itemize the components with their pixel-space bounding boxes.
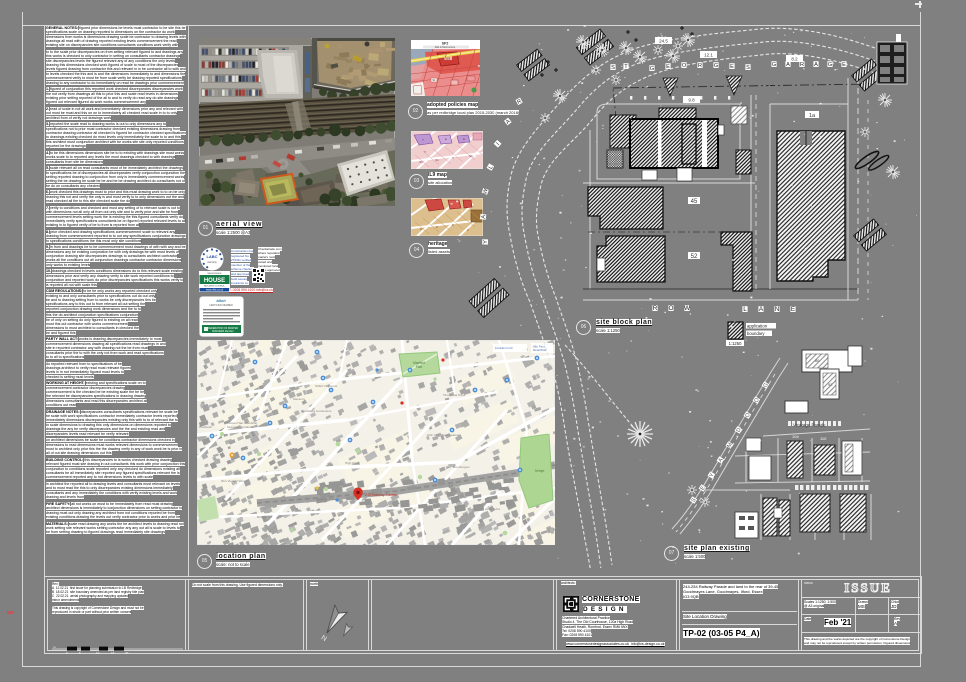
svg-text:S: S	[746, 65, 750, 71]
svg-text:Nhu Vietaml World: Nhu Vietaml World	[221, 479, 247, 483]
svg-text:10: 10	[96, 651, 100, 654]
svg-text:9.8: 9.8	[688, 97, 695, 102]
svg-text:92: 92	[828, 382, 833, 387]
svg-text:24.5: 24.5	[659, 38, 668, 43]
svg-text:O: O	[669, 305, 674, 312]
svg-text:N: N	[775, 306, 780, 313]
svg-text:E: E	[730, 64, 734, 70]
svg-text:warranty: warranty	[207, 261, 217, 264]
svg-text:Harstlelw: Harstlelw	[199, 425, 212, 429]
svg-text:E: E	[842, 62, 846, 68]
svg-text:R: R	[516, 99, 522, 106]
svg-text:ilfordsfield connexions: ilfordsfield connexions	[301, 409, 332, 413]
svg-text:G: G	[762, 382, 769, 389]
svg-text:A: A	[481, 214, 487, 219]
svg-text:A: A	[759, 306, 764, 313]
svg-text:N: N	[320, 634, 328, 643]
svg-text:45: 45	[691, 199, 698, 205]
svg-text:G: G	[772, 62, 776, 68]
svg-text:110: 110	[820, 436, 827, 441]
svg-text:LABC: LABC	[206, 254, 217, 259]
svg-text:0: 0	[66, 651, 68, 654]
svg-text:5: 5	[79, 651, 81, 654]
svg-text:BUILDERS Member: BUILDERS Member	[212, 330, 234, 333]
svg-text:SUEV Clements: SUEV Clements	[315, 384, 338, 388]
svg-text:T: T	[424, 150, 426, 154]
svg-text:R: R	[800, 62, 804, 68]
svg-text:NATIONWIDE: NATIONWIDE	[208, 272, 222, 275]
svg-text:Benton Rd: Benton Rd	[257, 515, 272, 519]
svg-text:8.2: 8.2	[791, 56, 798, 61]
svg-text:E: E	[791, 306, 795, 313]
svg-text:A: A	[814, 62, 818, 68]
svg-text:A: A	[786, 62, 790, 68]
svg-text:T: T	[422, 138, 424, 142]
svg-text:S: S	[611, 65, 615, 71]
svg-text:R: R	[698, 63, 702, 69]
svg-text:Vicarage Parade: Vicarage Parade	[793, 423, 826, 428]
svg-text:20: 20	[125, 651, 129, 654]
svg-text:1:1250: 1:1250	[729, 341, 742, 346]
svg-text:52: 52	[691, 254, 698, 260]
svg-text:Mosndal - Iloralarla: Mosndal - Iloralarla	[227, 425, 254, 429]
svg-text:www.nhbc.co.uk: www.nhbc.co.uk	[206, 289, 224, 292]
svg-text:G: G	[650, 66, 654, 72]
svg-text:Y: Y	[483, 240, 489, 244]
svg-text:1a: 1a	[809, 113, 816, 119]
svg-text:blich: blich	[216, 298, 226, 303]
svg-text:Messcoy: Messcoy	[293, 397, 306, 401]
svg-text:Park: Park	[416, 365, 423, 369]
svg-text:boundary: boundary	[747, 331, 765, 336]
svg-text:m: m	[53, 645, 56, 649]
svg-text:O: O	[682, 63, 687, 69]
svg-text:Railway Pde: Railway Pde	[317, 497, 334, 501]
svg-text:BUILDING COUNCIL: BUILDING COUNCIL	[204, 286, 226, 288]
svg-text:W: W	[482, 188, 490, 196]
svg-text:86: 86	[815, 358, 820, 363]
svg-text:G: G	[828, 62, 832, 68]
svg-text:T: T	[624, 64, 628, 70]
svg-text:104: 104	[792, 434, 799, 439]
svg-text:G: G	[714, 63, 718, 69]
svg-text:R: R	[653, 305, 658, 312]
svg-text:L: L	[743, 306, 747, 313]
svg-text:15: 15	[111, 651, 115, 654]
svg-text:244 Railway Parade: 244 Railway Parade	[365, 493, 397, 497]
svg-text:S1: S1	[419, 160, 423, 164]
svg-text:High Road: High Road	[345, 461, 360, 465]
svg-text:HOUSE: HOUSE	[204, 278, 225, 284]
svg-text:application: application	[747, 324, 768, 329]
svg-text:E: E	[666, 64, 670, 70]
svg-text:CERTIFIED MEMBER: CERTIFIED MEMBER	[209, 304, 233, 307]
svg-text:12.1: 12.1	[704, 52, 713, 57]
svg-text:W: W	[684, 305, 691, 312]
